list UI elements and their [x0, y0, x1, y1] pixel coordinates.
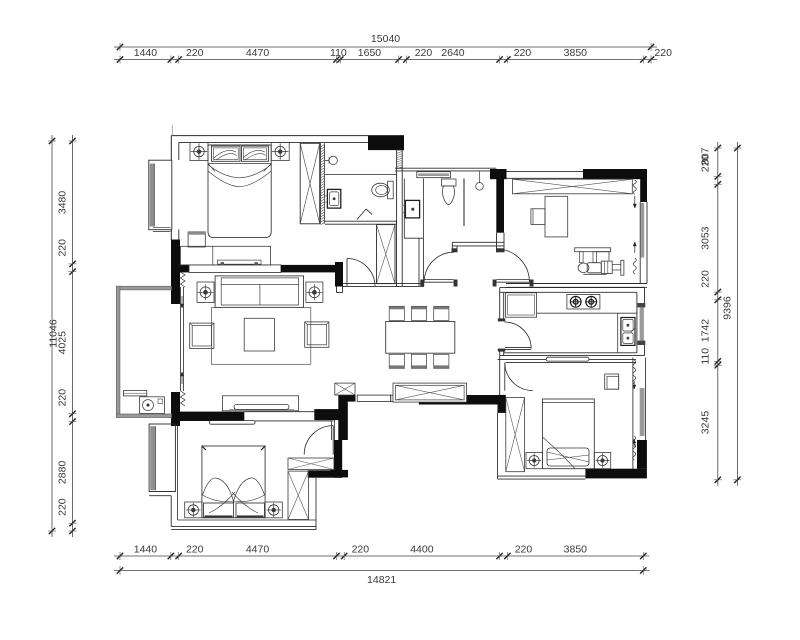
svg-text:110: 110 — [700, 348, 712, 365]
svg-text:220: 220 — [186, 47, 204, 59]
svg-text:220: 220 — [352, 544, 370, 556]
svg-text:220: 220 — [700, 154, 712, 172]
svg-text:14821: 14821 — [367, 574, 396, 586]
svg-text:3850: 3850 — [564, 47, 588, 59]
svg-text:220: 220 — [57, 498, 69, 516]
svg-text:1742: 1742 — [700, 319, 712, 343]
svg-text:4470: 4470 — [246, 47, 270, 59]
svg-text:3053: 3053 — [700, 226, 712, 250]
svg-text:220: 220 — [415, 47, 433, 59]
svg-text:220: 220 — [700, 270, 712, 288]
svg-text:220: 220 — [57, 389, 69, 407]
svg-text:110: 110 — [330, 47, 347, 59]
svg-text:15040: 15040 — [371, 33, 400, 45]
svg-text:9396: 9396 — [722, 296, 734, 320]
svg-text:220: 220 — [186, 544, 204, 556]
svg-text:11046: 11046 — [48, 319, 60, 348]
svg-text:2880: 2880 — [57, 461, 69, 485]
svg-text:220: 220 — [514, 47, 532, 59]
svg-text:1650: 1650 — [358, 47, 382, 59]
svg-text:3480: 3480 — [57, 191, 69, 215]
svg-text:3850: 3850 — [564, 544, 588, 556]
svg-text:1440: 1440 — [134, 47, 158, 59]
svg-text:220: 220 — [654, 47, 672, 59]
svg-text:1440: 1440 — [134, 544, 158, 556]
svg-text:220: 220 — [515, 544, 533, 556]
svg-text:2640: 2640 — [441, 47, 465, 59]
svg-text:220: 220 — [57, 239, 69, 257]
svg-text:3245: 3245 — [700, 411, 712, 435]
svg-text:4400: 4400 — [410, 544, 434, 556]
svg-text:4470: 4470 — [246, 544, 270, 556]
